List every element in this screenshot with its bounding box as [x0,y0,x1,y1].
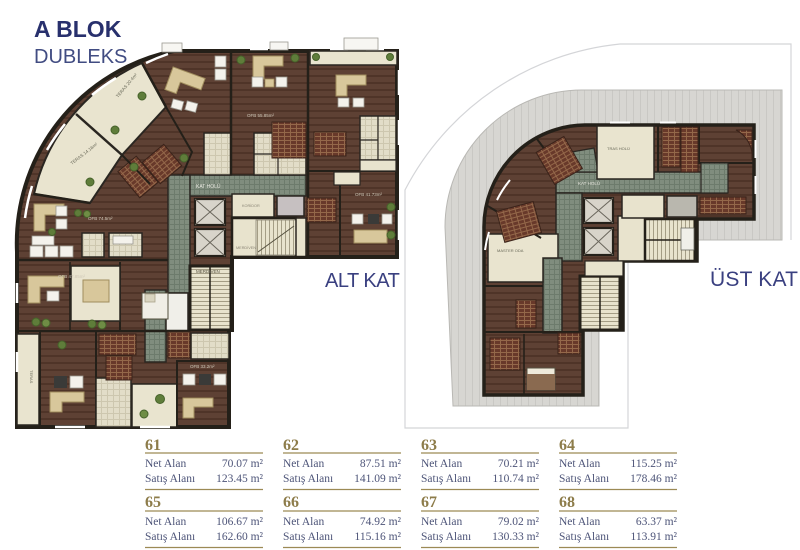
svg-text:TRAS HOLÜ: TRAS HOLÜ [607,146,630,151]
svg-text:Satış Alanı: Satış Alanı [421,531,471,543]
svg-text:Net Alan: Net Alan [283,516,324,528]
svg-text:ALT KAT: ALT KAT [325,270,400,292]
svg-text:KAT HOLÜ: KAT HOLÜ [578,180,600,186]
svg-text:OFB 55.85m²: OFB 55.85m² [247,113,275,118]
svg-text:Satış Alanı: Satış Alanı [283,531,333,543]
svg-text:68: 68 [559,494,575,511]
svg-text:178.46 m²: 178.46 m² [630,473,677,485]
svg-text:OFB 33.2m²: OFB 33.2m² [190,364,215,369]
svg-text:74.92 m²: 74.92 m² [360,516,402,528]
svg-text:A BLOK: A BLOK [34,16,122,42]
svg-text:KAT HOLÜ: KAT HOLÜ [196,183,221,190]
svg-text:79.02 m²: 79.02 m² [498,516,540,528]
svg-text:64: 64 [559,437,575,454]
svg-text:OFB 47.85m²: OFB 47.85m² [58,274,86,279]
svg-text:87.51 m²: 87.51 m² [360,458,402,470]
svg-text:130.33 m²: 130.33 m² [492,531,539,543]
svg-text:Satış Alanı: Satış Alanı [145,531,195,543]
svg-text:TERAS: TERAS [29,370,34,384]
svg-text:MASTER ODA: MASTER ODA [497,248,524,253]
svg-text:63: 63 [421,437,437,454]
svg-text:OFB 74.5m²: OFB 74.5m² [88,216,113,221]
svg-text:113.91 m²: 113.91 m² [631,531,678,543]
svg-text:63.37 m²: 63.37 m² [636,516,678,528]
svg-text:Net Alan: Net Alan [145,458,186,470]
svg-text:Net Alan: Net Alan [559,458,600,470]
svg-text:70.07 m²: 70.07 m² [222,458,264,470]
svg-text:MERDİVEN: MERDİVEN [196,268,220,274]
svg-text:141.09 m²: 141.09 m² [354,473,401,485]
svg-text:62: 62 [283,437,299,454]
svg-text:115.25 m²: 115.25 m² [631,458,678,470]
svg-text:Net Alan: Net Alan [421,458,462,470]
svg-text:Net Alan: Net Alan [421,516,462,528]
svg-text:Net Alan: Net Alan [145,516,186,528]
svg-text:106.67 m²: 106.67 m² [216,516,263,528]
svg-text:OFB 41.73m²: OFB 41.73m² [355,192,383,197]
svg-text:MERDİVEN: MERDİVEN [236,245,256,250]
svg-text:162.60 m²: 162.60 m² [216,531,263,543]
svg-text:ÜST KAT: ÜST KAT [710,268,798,291]
svg-text:Net Alan: Net Alan [283,458,324,470]
svg-text:123.45 m²: 123.45 m² [216,473,263,485]
svg-text:70.21 m²: 70.21 m² [498,458,540,470]
svg-text:DUBLEKS: DUBLEKS [34,46,127,68]
svg-text:61: 61 [145,437,161,454]
svg-text:115.16 m²: 115.16 m² [355,531,402,543]
svg-text:Satış Alanı: Satış Alanı [559,473,609,485]
svg-text:110.74 m²: 110.74 m² [493,473,540,485]
svg-text:65: 65 [145,494,161,511]
svg-text:Satış Alanı: Satış Alanı [559,531,609,543]
svg-text:66: 66 [283,494,299,511]
svg-text:KORİDOR: KORİDOR [242,203,260,208]
svg-text:67: 67 [421,494,437,511]
svg-text:Satış Alanı: Satış Alanı [421,473,471,485]
svg-text:Net Alan: Net Alan [559,516,600,528]
svg-text:Satış Alanı: Satış Alanı [283,473,333,485]
svg-text:Satış Alanı: Satış Alanı [145,473,195,485]
